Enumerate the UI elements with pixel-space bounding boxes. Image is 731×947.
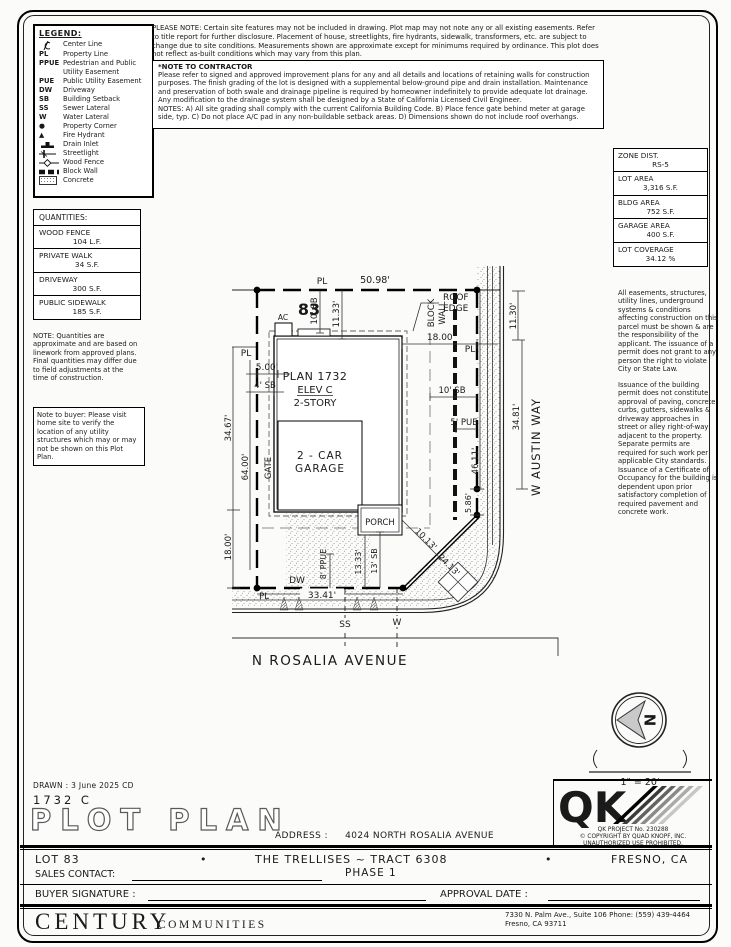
quantities-title: QUANTITIES: (33, 209, 141, 226)
quantities-box: QUANTITIES: WOOD FENCE104 L.F. PRIVATE W… (33, 209, 141, 320)
site-stats: ZONE DIST.RS-5 LOT AREA3,316 S.F. BLDG A… (613, 149, 708, 267)
garage-label-1: 2 - CAR (297, 450, 343, 462)
quantity-private-walk: PRIVATE WALK34 S.F. (33, 248, 141, 273)
quantity-label: PUBLIC SIDEWALK (34, 298, 140, 307)
sb4-label: 4' SB (254, 381, 276, 391)
qk-logo-letters: QK (558, 783, 628, 832)
contractor-note-body: Please refer to signed and approved impr… (158, 71, 598, 105)
stat-value: 400 S.F. (614, 230, 707, 239)
ppue-symbol: PPUE (39, 59, 63, 68)
gate-label: GATE (264, 457, 274, 479)
contractor-note-title: *NOTE TO CONTRACTOR (158, 63, 598, 71)
builder-logo-communities: COMMUNITIES (158, 919, 267, 931)
stat-value: RS-5 (614, 160, 707, 169)
dim-1333: 13.33' (354, 549, 363, 574)
sewer-symbol: SS (39, 104, 63, 113)
stat-lot-coverage: LOT COVERAGE34.12 % (613, 242, 708, 267)
titleblock-rule (20, 845, 712, 850)
builder-address-line1: 7330 N. Palm Ave., Suite 106 Phone: (559… (505, 911, 690, 920)
frontage-dim: 50.98' (360, 275, 390, 286)
buyer-signature-blank[interactable] (148, 900, 426, 901)
bullet-separator: • (545, 853, 553, 866)
phase-label: PHASE 1 (345, 867, 397, 879)
dim-3341: 33.41' (308, 591, 336, 601)
street-name-east: W AUSTIN WAY (529, 398, 543, 496)
builder-address-line2: Fresno, CA 93711 (505, 920, 690, 929)
sales-contact-blank[interactable] (132, 880, 322, 881)
dw-label: DW (289, 576, 305, 586)
legend-label: Block Wall (63, 167, 148, 176)
legend-label: Water Lateral (63, 113, 148, 122)
property-line-symbol: PL (39, 50, 63, 59)
stat-lot-area: LOT AREA3,316 S.F. (613, 171, 708, 196)
wood-fence-icon (39, 158, 63, 167)
legend-label: Building Setback (63, 95, 148, 104)
address-value: 4024 NORTH ROSALIA AVENUE (345, 831, 494, 841)
block-wall-label-2: WALL (438, 301, 448, 324)
drawn-line: DRAWN : 3 June 2025 CD (33, 781, 134, 790)
plan-elev: ELEV C (297, 385, 332, 396)
streetlight-icon (39, 149, 63, 158)
legend-label: Property Line (63, 50, 148, 59)
address-line: ADDRESS : 4024 NORTH ROSALIA AVENUE (275, 831, 494, 841)
titleblock-divider (553, 779, 712, 781)
easement-note: All easements, structures, utility lines… (618, 289, 718, 374)
pue-symbol: PUE (39, 77, 63, 86)
ac-label: AC (278, 313, 288, 322)
ppue8-label: 8' PPUE (319, 549, 328, 579)
address-label: ADDRESS : (275, 831, 328, 841)
titleblock-divider-v (553, 779, 554, 846)
quantity-driveway: DRIVEWAY300 S.F. (33, 272, 141, 297)
parkway-concrete (403, 266, 500, 606)
quantity-value: 34 S.F. (34, 260, 140, 269)
stat-label: LOT COVERAGE (614, 245, 707, 254)
stat-value: 34.12 % (614, 254, 707, 263)
property-corner (254, 585, 261, 592)
legend-label: Property Corner (63, 122, 148, 131)
garage-label-2: GARAGE (295, 463, 345, 475)
pl-label-bottom: PL (259, 592, 269, 602)
dim-3481: 34.81' (512, 404, 522, 431)
builder-address: 7330 N. Palm Ave., Suite 106 Phone: (559… (505, 911, 690, 930)
legend-label: Wood Fence (63, 158, 148, 167)
dim-64: 64.00' (241, 454, 251, 481)
builder-logo-century: CENTURY (35, 909, 170, 935)
dim-3467: 34.67' (224, 415, 234, 442)
stat-value: 752 S.F. (614, 207, 707, 216)
approval-date-blank[interactable] (548, 900, 700, 901)
water-symbol: W (39, 113, 63, 122)
stat-garage-area: GARAGE AREA400 S.F. (613, 218, 708, 243)
sb13-label: 13' SB (370, 548, 379, 574)
pl-label: PL (317, 277, 327, 287)
quantity-wood-fence: WOOD FENCE104 L.F. (33, 225, 141, 250)
concrete-icon (39, 176, 63, 188)
permit-note: Issuance of the building permit does not… (618, 381, 718, 517)
buyer-note-box: Note to buyer: Please visit home site to… (33, 407, 145, 466)
sheet-title: PLOT PLAN (30, 803, 291, 837)
legend-label: Public Utility Easement (63, 77, 148, 86)
dim-1013: 10.13' (412, 527, 438, 553)
approval-date-label: APPROVAL DATE : (440, 889, 528, 900)
plan-name: PLAN 1732 (283, 370, 348, 383)
lot-label: LOT 83 (35, 853, 80, 866)
north-letter: N (642, 714, 660, 727)
quantity-public-sidewalk: PUBLIC SIDEWALK185 S.F. (33, 295, 141, 320)
qk-logo: QK QK PROJECT No. 230288 © COPYRIGHT BY … (556, 782, 710, 846)
ac-pad (275, 323, 292, 336)
legend-title: LEGEND: (39, 29, 148, 38)
dim-1130: 11.30' (509, 303, 519, 330)
legend-label: Streetlight (63, 149, 148, 158)
quantities-note: NOTE: Quantities are approximate and are… (33, 332, 139, 383)
fire-hydrant-icon: ▲ (39, 131, 63, 140)
setback-symbol: SB (39, 95, 63, 104)
w-label: W (393, 618, 402, 628)
pue5-label: 5' PUE (450, 418, 477, 428)
dim-18-right: 18.00' (427, 333, 455, 343)
titleblock-rule-thin (20, 884, 712, 885)
dim-586: 5.86' (464, 493, 473, 513)
sales-contact-label: SALES CONTACT: (35, 869, 115, 880)
bullet-separator: • (200, 853, 208, 866)
dim-5: 5.00' (256, 363, 279, 373)
stat-label: GARAGE AREA (614, 221, 707, 230)
property-corner (254, 287, 261, 294)
qk-copyright: © COPYRIGHT BY QUAD KNOPF, INC. (580, 833, 687, 840)
plot-drawing: PL 50.98' 83 AC 10' SB 11.33' ROOF EDGE … (222, 258, 566, 680)
city-label: FRESNO, CA (611, 853, 688, 866)
block-wall-label-1: BLOCK (427, 298, 437, 327)
sb10-right: 10' SB (438, 386, 465, 396)
dim-4611: 46.11' (471, 448, 481, 475)
north-arrow: N 1" = 20' (585, 686, 697, 790)
legend-box: LEGEND: Center Line PLProperty Line PPUE… (33, 24, 154, 198)
stat-label: BLDG AREA (614, 198, 707, 207)
stat-bldg-area: BLDG AREA752 S.F. (613, 195, 708, 220)
ss-label: SS (339, 620, 351, 630)
quantity-label: DRIVEWAY (34, 275, 140, 284)
property-corner (474, 287, 481, 294)
legend-label: Pedestrian and Public Utility Easement (63, 59, 148, 77)
buyer-signature-label: BUYER SIGNATURE : (35, 889, 136, 900)
please-note-text: PLEASE NOTE: Certain site features may n… (152, 24, 602, 59)
legend-label: Concrete (63, 176, 148, 185)
sb10-top: 10' SB (310, 297, 320, 324)
legend-label: Center Line (63, 40, 148, 49)
house-feature (298, 329, 330, 336)
pl-label-left: PL (241, 349, 251, 359)
drain-inlet-icon (39, 140, 63, 149)
contractor-note-box: *NOTE TO CONTRACTOR Please refer to sign… (152, 60, 604, 129)
quantity-label: WOOD FENCE (34, 228, 140, 237)
legend-label: Drain Inlet (63, 140, 148, 149)
centerline-icon (39, 40, 63, 50)
property-corner (400, 585, 407, 592)
pl-label-right: PL (465, 345, 475, 355)
contractor-note-list: NOTES: A) All site grading shall comply … (158, 105, 598, 122)
porch-label: PORCH (365, 518, 395, 528)
quantity-value: 104 L.F. (34, 237, 140, 246)
quantity-value: 300 S.F. (34, 284, 140, 293)
tract-label: THE TRELLISES ~ TRACT 6308 (255, 853, 448, 866)
plan-story: 2-STORY (294, 398, 338, 409)
legend-label: Sewer Lateral (63, 104, 148, 113)
dim-18-left: 18.00' (224, 534, 234, 561)
stat-label: LOT AREA (614, 174, 707, 183)
stat-label: ZONE DIST. (614, 151, 707, 160)
driveway-symbol: DW (39, 86, 63, 95)
qk-logo-stripes (613, 786, 703, 824)
quantity-label: PRIVATE WALK (34, 251, 140, 260)
property-corner-icon: ● (39, 122, 63, 131)
stat-zone: ZONE DIST.RS-5 (613, 148, 708, 173)
stat-value: 3,316 S.F. (614, 183, 707, 192)
legend-label: Driveway (63, 86, 148, 95)
block-wall-icon (39, 167, 63, 176)
quantity-value: 185 S.F. (34, 307, 140, 316)
dim-1133: 11.33' (332, 301, 342, 328)
qk-project-number: QK PROJECT No. 230288 (598, 827, 669, 833)
right-notes: All easements, structures, utility lines… (618, 289, 718, 524)
street-name-south: N ROSALIA AVENUE (252, 653, 408, 669)
legend-label: Fire Hydrant (63, 131, 148, 140)
